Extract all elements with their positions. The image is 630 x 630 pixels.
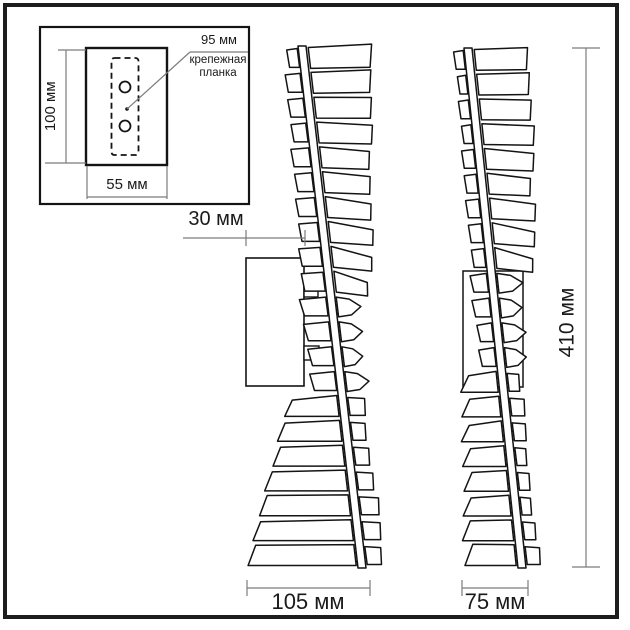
dim-label-total-height: 410 мм bbox=[555, 283, 578, 363]
callout-line-1: крепежная bbox=[181, 54, 255, 67]
dim-label-plate-width: 95 мм bbox=[189, 33, 249, 47]
dim-label-bracket-depth: 30 мм bbox=[183, 208, 249, 230]
technical-drawing bbox=[0, 0, 630, 630]
dim-label-plate-height: 100 мм bbox=[43, 71, 60, 141]
dim-label-side-width: 105 мм bbox=[246, 590, 370, 614]
dim-label-backplate-width: 55 мм bbox=[87, 177, 167, 194]
callout-line-2: планка bbox=[181, 67, 255, 80]
lamp-front-view bbox=[454, 48, 541, 568]
callout-mounting-plate: крепежная планка bbox=[181, 54, 255, 79]
dim-label-front-width: 75 мм bbox=[461, 590, 529, 614]
